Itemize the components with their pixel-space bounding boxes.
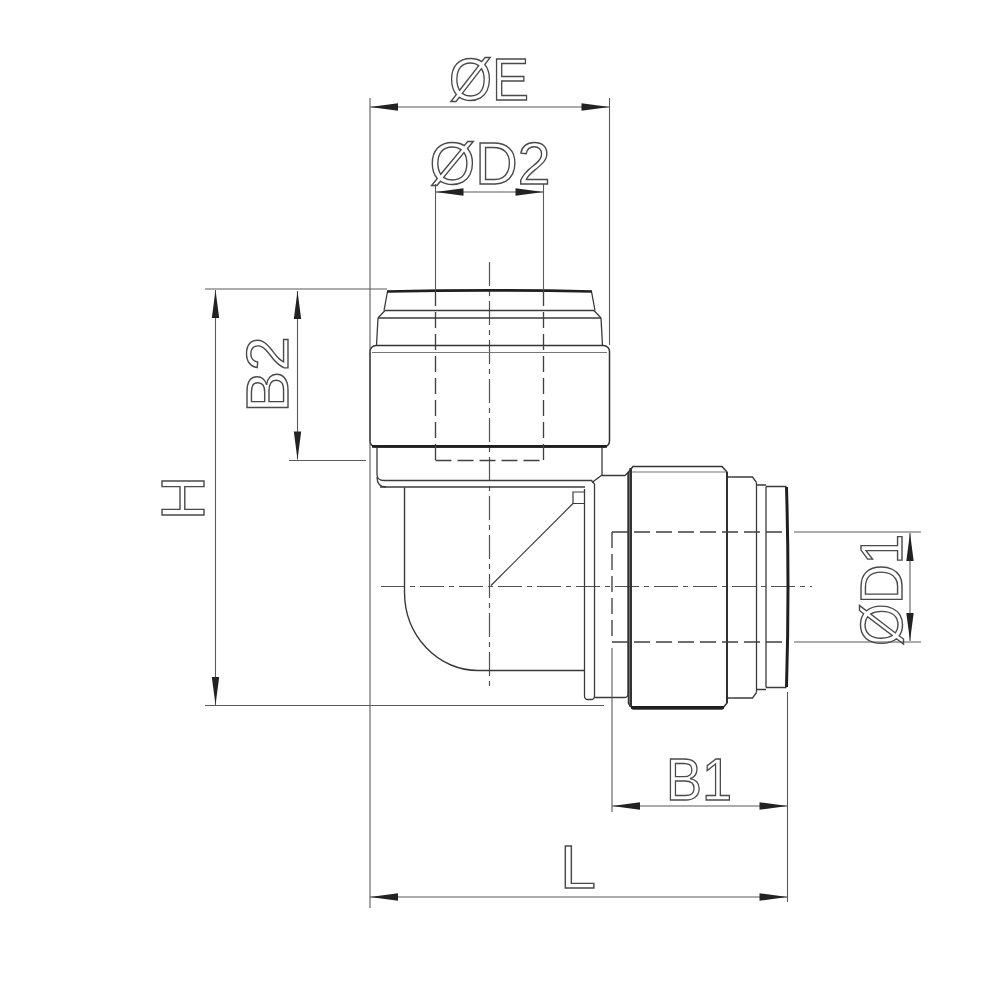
svg-text:B1: B1	[666, 746, 732, 813]
svg-text:ØD1: ØD1	[848, 534, 915, 646]
svg-text:L: L	[560, 832, 596, 901]
svg-text:ØE: ØE	[449, 46, 529, 113]
svg-text:H: H	[148, 476, 217, 520]
svg-text:B2: B2	[234, 337, 301, 413]
svg-text:ØD2: ØD2	[430, 130, 551, 197]
